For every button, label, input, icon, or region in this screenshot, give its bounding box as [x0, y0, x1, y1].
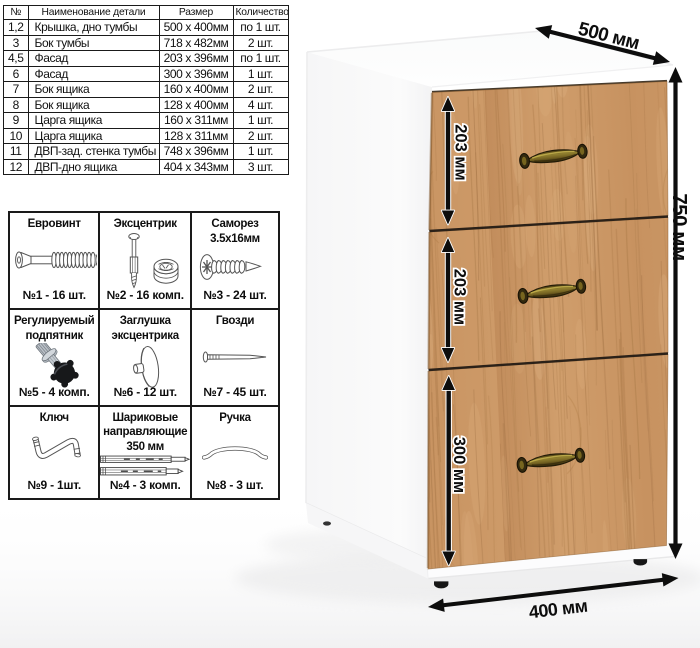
svg-text:203 мм: 203 мм — [451, 269, 469, 326]
svg-text:203 мм: 203 мм — [452, 124, 470, 181]
svg-text:300 мм: 300 мм — [450, 437, 468, 494]
svg-text:750 мм: 750 мм — [668, 193, 691, 260]
